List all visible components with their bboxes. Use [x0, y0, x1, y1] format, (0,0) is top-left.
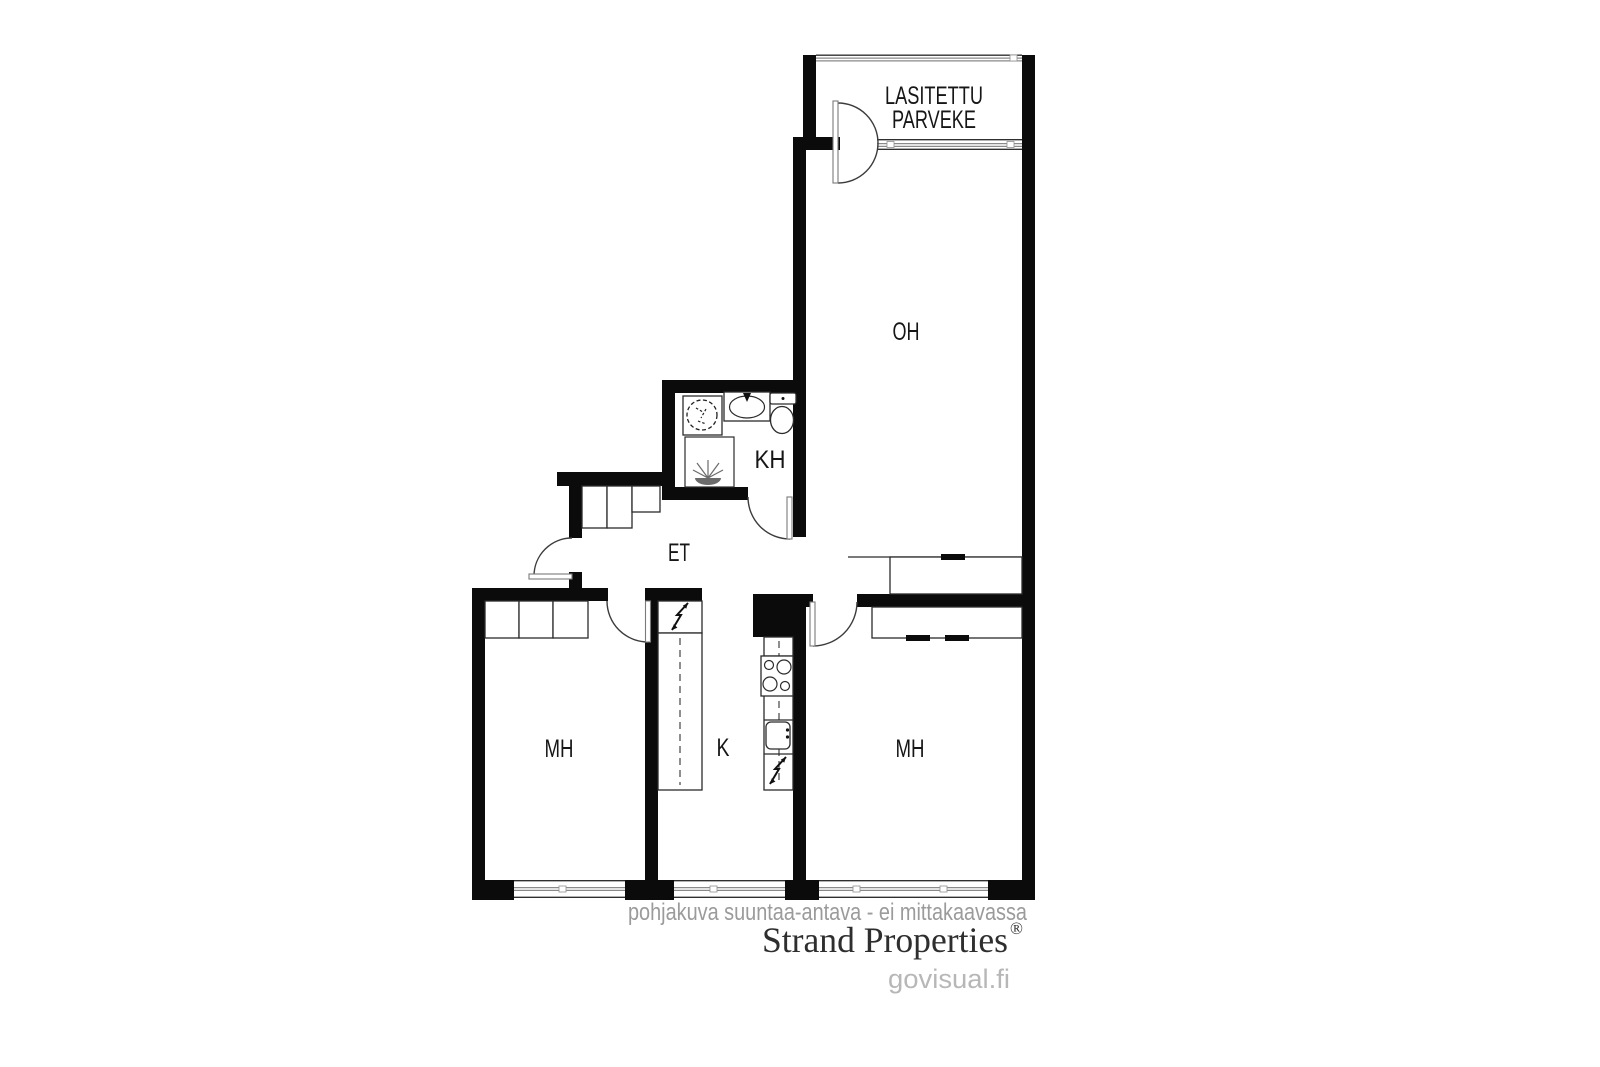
floor-plan-page: LASITETTU PARVEKE OH KH ET MH K MH pohja…	[0, 0, 1600, 1067]
door-swing-arc	[838, 103, 878, 183]
washing-machine-body	[683, 396, 722, 435]
stove	[761, 656, 793, 696]
wall-segment	[662, 380, 806, 393]
wall-segment	[472, 880, 514, 900]
bathroom-sink	[724, 392, 770, 421]
shower-area	[685, 437, 734, 487]
door-leaf	[646, 601, 651, 642]
faucet-dot	[786, 728, 789, 731]
room-label-kitchen: K	[717, 734, 730, 762]
window-band	[514, 880, 625, 898]
window-tick	[559, 886, 566, 892]
toilet	[770, 393, 796, 434]
window-tick	[1007, 142, 1014, 148]
toilet-bowl	[771, 407, 794, 434]
window-tick	[853, 886, 860, 892]
door-leaf	[810, 602, 815, 646]
floor-plan: LASITETTU PARVEKE OH KH ET MH K MH pohja…	[0, 0, 1600, 1067]
window-band	[819, 880, 988, 898]
bedroom-right-window	[819, 880, 988, 898]
shower-floor-drain	[693, 460, 723, 485]
sliding-door-mark	[941, 554, 965, 560]
bedroom-left-door	[607, 601, 651, 642]
door-leaf	[529, 574, 572, 579]
wall-segment	[1022, 55, 1035, 900]
door-swing-arc	[534, 538, 572, 576]
kitchen-sink	[766, 722, 790, 749]
wardrobe-cell	[607, 486, 632, 528]
sliding-door-mark	[945, 635, 969, 641]
wall-segment	[645, 588, 702, 601]
bathroom-door	[748, 497, 792, 539]
flue-shaft	[753, 594, 793, 637]
door-leaf	[787, 497, 792, 539]
wall-segment	[472, 588, 608, 601]
wardrobe-cell	[485, 601, 519, 638]
registered-trademark-icon: ®	[1010, 919, 1023, 938]
wardrobe-cell	[632, 486, 660, 512]
wall-segment	[569, 472, 582, 538]
wall-segment	[793, 594, 806, 900]
wall-segment	[988, 880, 1035, 900]
window-tick	[710, 886, 717, 892]
balcony-inner-window	[877, 139, 1022, 150]
room-label-bedroom-left: MH	[545, 735, 574, 763]
balcony-glazing-window	[816, 54, 1022, 62]
doors	[529, 101, 878, 646]
room-label-living-room: OH	[893, 318, 920, 346]
brand-logo-text: Strand Properties	[762, 920, 1008, 960]
wardrobe-cell	[872, 607, 1022, 638]
wardrobe-cell	[519, 601, 553, 638]
wall-segment	[472, 588, 485, 900]
entrance-door	[529, 538, 572, 579]
sink-basin	[766, 722, 790, 749]
walls	[472, 55, 1035, 900]
wall-segment	[857, 594, 1022, 607]
flush-button	[782, 397, 785, 400]
kitchen-window	[674, 880, 785, 898]
window-tick	[887, 142, 894, 148]
footer: pohjakuva suuntaa-antava - ei mittakaava…	[628, 899, 1028, 994]
wardrobe-cell	[890, 557, 1022, 594]
room-label-balcony-line2: PARVEKE	[892, 106, 976, 134]
door-swing-arc	[607, 601, 648, 642]
wall-segment	[662, 487, 748, 500]
bedroom-right-door	[810, 602, 857, 646]
room-label-hallway: ET	[668, 539, 690, 567]
window-tick	[1010, 55, 1017, 61]
door-swing-arc	[748, 497, 790, 539]
bedroom-left-wardrobe	[485, 601, 588, 638]
room-label-bathroom: KH	[755, 446, 786, 474]
wall-segment	[793, 137, 806, 537]
sliding-door-mark	[906, 635, 930, 641]
wardrobe-cell	[553, 601, 588, 638]
window-band	[674, 880, 785, 898]
wall-segment	[625, 880, 674, 900]
window-band	[877, 139, 1022, 150]
wall-segment	[785, 880, 819, 900]
door-leaf	[833, 101, 838, 183]
bedroom-left-window	[514, 880, 625, 898]
wall-segment	[803, 55, 816, 150]
room-label-bedroom-right: MH	[896, 735, 925, 763]
door-swing-arc	[813, 602, 857, 646]
faucet-dot	[786, 735, 789, 738]
drain-base	[695, 478, 721, 485]
washing-machine	[683, 396, 722, 435]
watermark-text: govisual.fi	[888, 964, 1010, 994]
bedroom-right-wardrobe	[872, 607, 1022, 641]
living-room-wardrobe	[848, 554, 1022, 594]
drain-rays	[693, 460, 723, 478]
wardrobe-cell	[582, 486, 607, 528]
hallway-wardrobe	[582, 486, 660, 528]
window-tick	[940, 886, 947, 892]
